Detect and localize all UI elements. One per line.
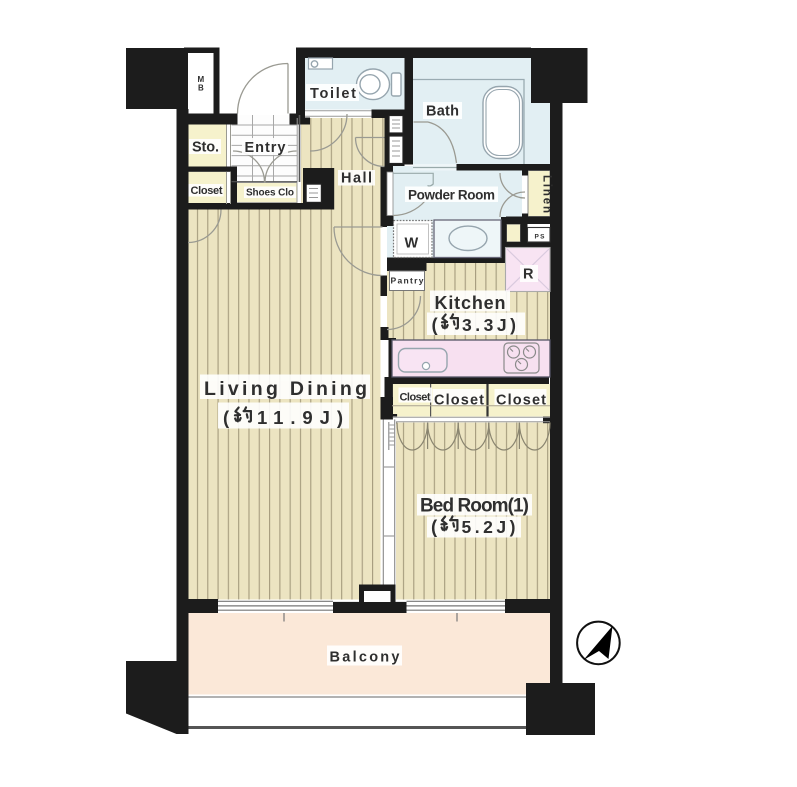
svg-text:PS: PS bbox=[535, 234, 546, 241]
svg-text:Powder Room: Powder Room bbox=[408, 188, 495, 203]
svg-text:Pantry: Pantry bbox=[391, 276, 424, 286]
svg-text:Closet: Closet bbox=[191, 185, 223, 197]
svg-text:Hall: Hall bbox=[341, 171, 372, 187]
svg-text:Living Dining: Living Dining bbox=[204, 378, 367, 400]
svg-text:Closet: Closet bbox=[496, 393, 546, 409]
svg-text:Linen: Linen bbox=[541, 175, 553, 213]
svg-text:(: ( bbox=[431, 516, 438, 537]
svg-text:Bath: Bath bbox=[426, 104, 459, 120]
svg-text:Sto.: Sto. bbox=[192, 140, 219, 156]
svg-text:Toilet: Toilet bbox=[310, 86, 356, 102]
svg-text:W: W bbox=[405, 236, 419, 252]
svg-text:Kitchen: Kitchen bbox=[435, 293, 506, 313]
svg-text:Closet: Closet bbox=[434, 393, 484, 409]
svg-text:R: R bbox=[523, 267, 534, 283]
svg-text:Shoes Clo: Shoes Clo bbox=[246, 188, 294, 199]
svg-text:Bed Room(1): Bed Room(1) bbox=[420, 496, 529, 517]
svg-text:Closet: Closet bbox=[400, 392, 431, 404]
svg-text:(: ( bbox=[432, 314, 439, 335]
svg-text:(: ( bbox=[223, 407, 230, 428]
svg-text:B: B bbox=[198, 84, 204, 93]
svg-text:Entry: Entry bbox=[245, 140, 286, 156]
